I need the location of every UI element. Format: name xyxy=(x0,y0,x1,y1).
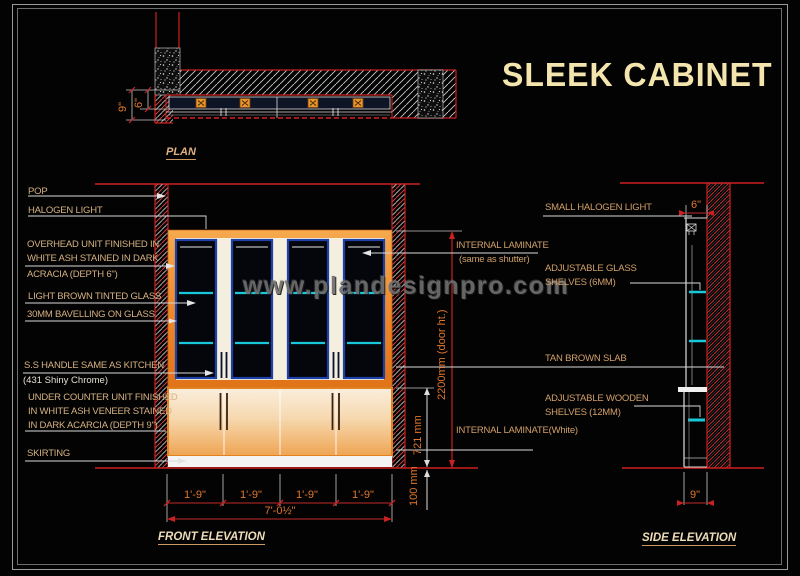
front-wall-right xyxy=(392,184,405,468)
callout-wooden-shelves-line2: SHELVES (12MM) xyxy=(545,407,621,418)
front-dim-segment-2: 1'-9" xyxy=(223,489,279,501)
front-dim-segment-3: 1'-9" xyxy=(279,489,335,501)
callout-glass-shelves-line2: SHELVES (6MM) xyxy=(545,277,616,288)
callout-overhead-line3: ACRACIA (DEPTH 6") xyxy=(27,269,118,280)
plan-dim-6in: 6" xyxy=(133,98,145,108)
callout-bevel: 30MM BAVELLING ON GLASS xyxy=(27,309,155,320)
callout-internal-laminate: INTERNAL LAMINATE xyxy=(456,240,549,251)
front-dim-segment-4: 1'-9" xyxy=(335,489,391,501)
callout-under-counter-line1: UNDER COUNTER UNIT FINISHED xyxy=(28,392,178,403)
watermark: www.plandesignpro.com xyxy=(243,272,569,301)
tan-slab-profile xyxy=(678,387,707,392)
callout-tinted-glass: LIGHT BROWN TINTED GLASS xyxy=(28,291,161,302)
callout-handle-finish: (431 Shiny Chrome) xyxy=(23,375,108,386)
callout-glass-shelves-line1: ADJUSTABLE GLASS xyxy=(545,263,637,274)
front-elevation-label: FRONT ELEVATION xyxy=(158,531,265,545)
side-elevation-label: SIDE ELEVATION xyxy=(642,532,736,546)
callout-halogen-light: HALOGEN LIGHT xyxy=(28,205,102,216)
cad-drawing-sheet: SLEEK CABINET www.plandesignpro.com PLAN… xyxy=(0,0,800,576)
callout-internal-laminate-note: (same as shutter) xyxy=(459,254,530,265)
callout-internal-laminate-white: INTERNAL LAMINATE(White) xyxy=(456,425,578,436)
callout-under-counter-line3: IN DARK ACARCIA (DEPTH 9") xyxy=(28,420,158,431)
plan-column-right xyxy=(418,70,443,118)
drawing-title: SLEEK CABINET xyxy=(502,56,772,94)
callout-pop: POP xyxy=(28,186,47,197)
callout-tan-slab: TAN BROWN SLAB xyxy=(545,353,626,364)
front-dim-counter-height: 721 mm xyxy=(412,415,424,455)
side-shelf-marks xyxy=(688,292,706,420)
front-dim-total: 7'-0½" xyxy=(240,505,320,517)
side-elevation-drawing xyxy=(620,183,764,468)
callout-ss-handle: S.S HANDLE SAME AS KITCHEN xyxy=(24,360,164,371)
plan-dim-9in: 9" xyxy=(117,102,129,112)
front-dim-segment-1: 1'-9" xyxy=(167,489,223,501)
callout-overhead-line2: WHITE ASH STAINED IN DARK xyxy=(27,253,159,264)
callout-small-halogen: SMALL HALOGEN LIGHT xyxy=(545,202,652,213)
plan-view-label: PLAN xyxy=(166,146,196,160)
small-halogen-symbol xyxy=(687,224,696,235)
front-dim-plinth: 100 mm xyxy=(408,466,420,506)
side-wall xyxy=(707,183,730,468)
side-dim-top-depth: 6" xyxy=(684,199,708,211)
plan-view xyxy=(126,12,456,123)
callout-wooden-shelves-line1: ADJUSTABLE WOODEN xyxy=(545,393,649,404)
skirting-band xyxy=(168,456,392,467)
callout-skirting: SKIRTING xyxy=(27,448,70,459)
callout-under-counter-line2: IN WHITE ASH VENEER STAINED xyxy=(28,406,172,417)
callout-overhead-line1: OVERHEAD UNIT FINISHED IN xyxy=(27,239,159,250)
front-dim-door-height: 2200mm (door ht.) xyxy=(436,310,448,400)
side-dim-bottom-depth: 9" xyxy=(683,489,707,501)
plan-column-left xyxy=(155,48,180,95)
